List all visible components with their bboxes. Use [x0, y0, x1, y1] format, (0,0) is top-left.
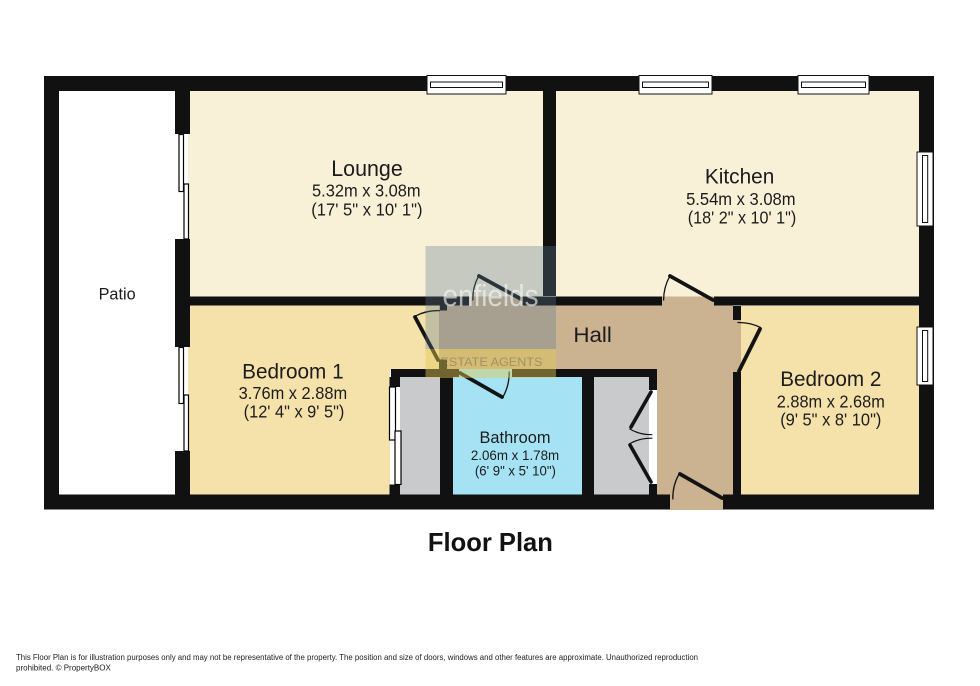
svg-text:(17' 5" x 10' 1"): (17' 5" x 10' 1") — [311, 200, 422, 220]
svg-text:(18' 2" x 10' 1"): (18' 2" x 10' 1") — [688, 208, 797, 228]
svg-text:enfields: enfields — [443, 278, 539, 313]
svg-text:Bedroom 2: Bedroom 2 — [780, 368, 881, 391]
svg-text:Bedroom 1: Bedroom 1 — [242, 361, 344, 384]
svg-text:Bathroom: Bathroom — [480, 429, 551, 447]
svg-text:(12' 4" x 9' 5"): (12' 4" x 9' 5") — [244, 402, 345, 422]
svg-text:Lounge: Lounge — [331, 156, 403, 181]
svg-text:2.06m x 1.78m: 2.06m x 1.78m — [471, 448, 559, 463]
svg-text:(6' 9" x 5' 10"): (6' 9" x 5' 10") — [475, 464, 556, 479]
svg-text:This Floor Plan is for illustr: This Floor Plan is for illustration purp… — [16, 653, 698, 662]
svg-text:(9' 5" x 8' 10"): (9' 5" x 8' 10") — [780, 410, 881, 430]
svg-text:Floor Plan: Floor Plan — [428, 527, 553, 557]
svg-text:Patio: Patio — [99, 286, 136, 304]
svg-text:3.76m x 2.88m: 3.76m x 2.88m — [239, 383, 348, 403]
svg-text:Kitchen: Kitchen — [705, 166, 775, 189]
svg-text:5.54m x 3.08m: 5.54m x 3.08m — [686, 189, 795, 209]
svg-text:5.32m x 3.08m: 5.32m x 3.08m — [312, 181, 421, 201]
svg-text:prohibited. © PropertyBOX: prohibited. © PropertyBOX — [16, 664, 111, 673]
svg-text:2.88m x 2.68m: 2.88m x 2.68m — [777, 392, 885, 412]
svg-text:ESTATE AGENTS: ESTATE AGENTS — [441, 357, 543, 369]
svg-text:Hall: Hall — [573, 324, 612, 347]
